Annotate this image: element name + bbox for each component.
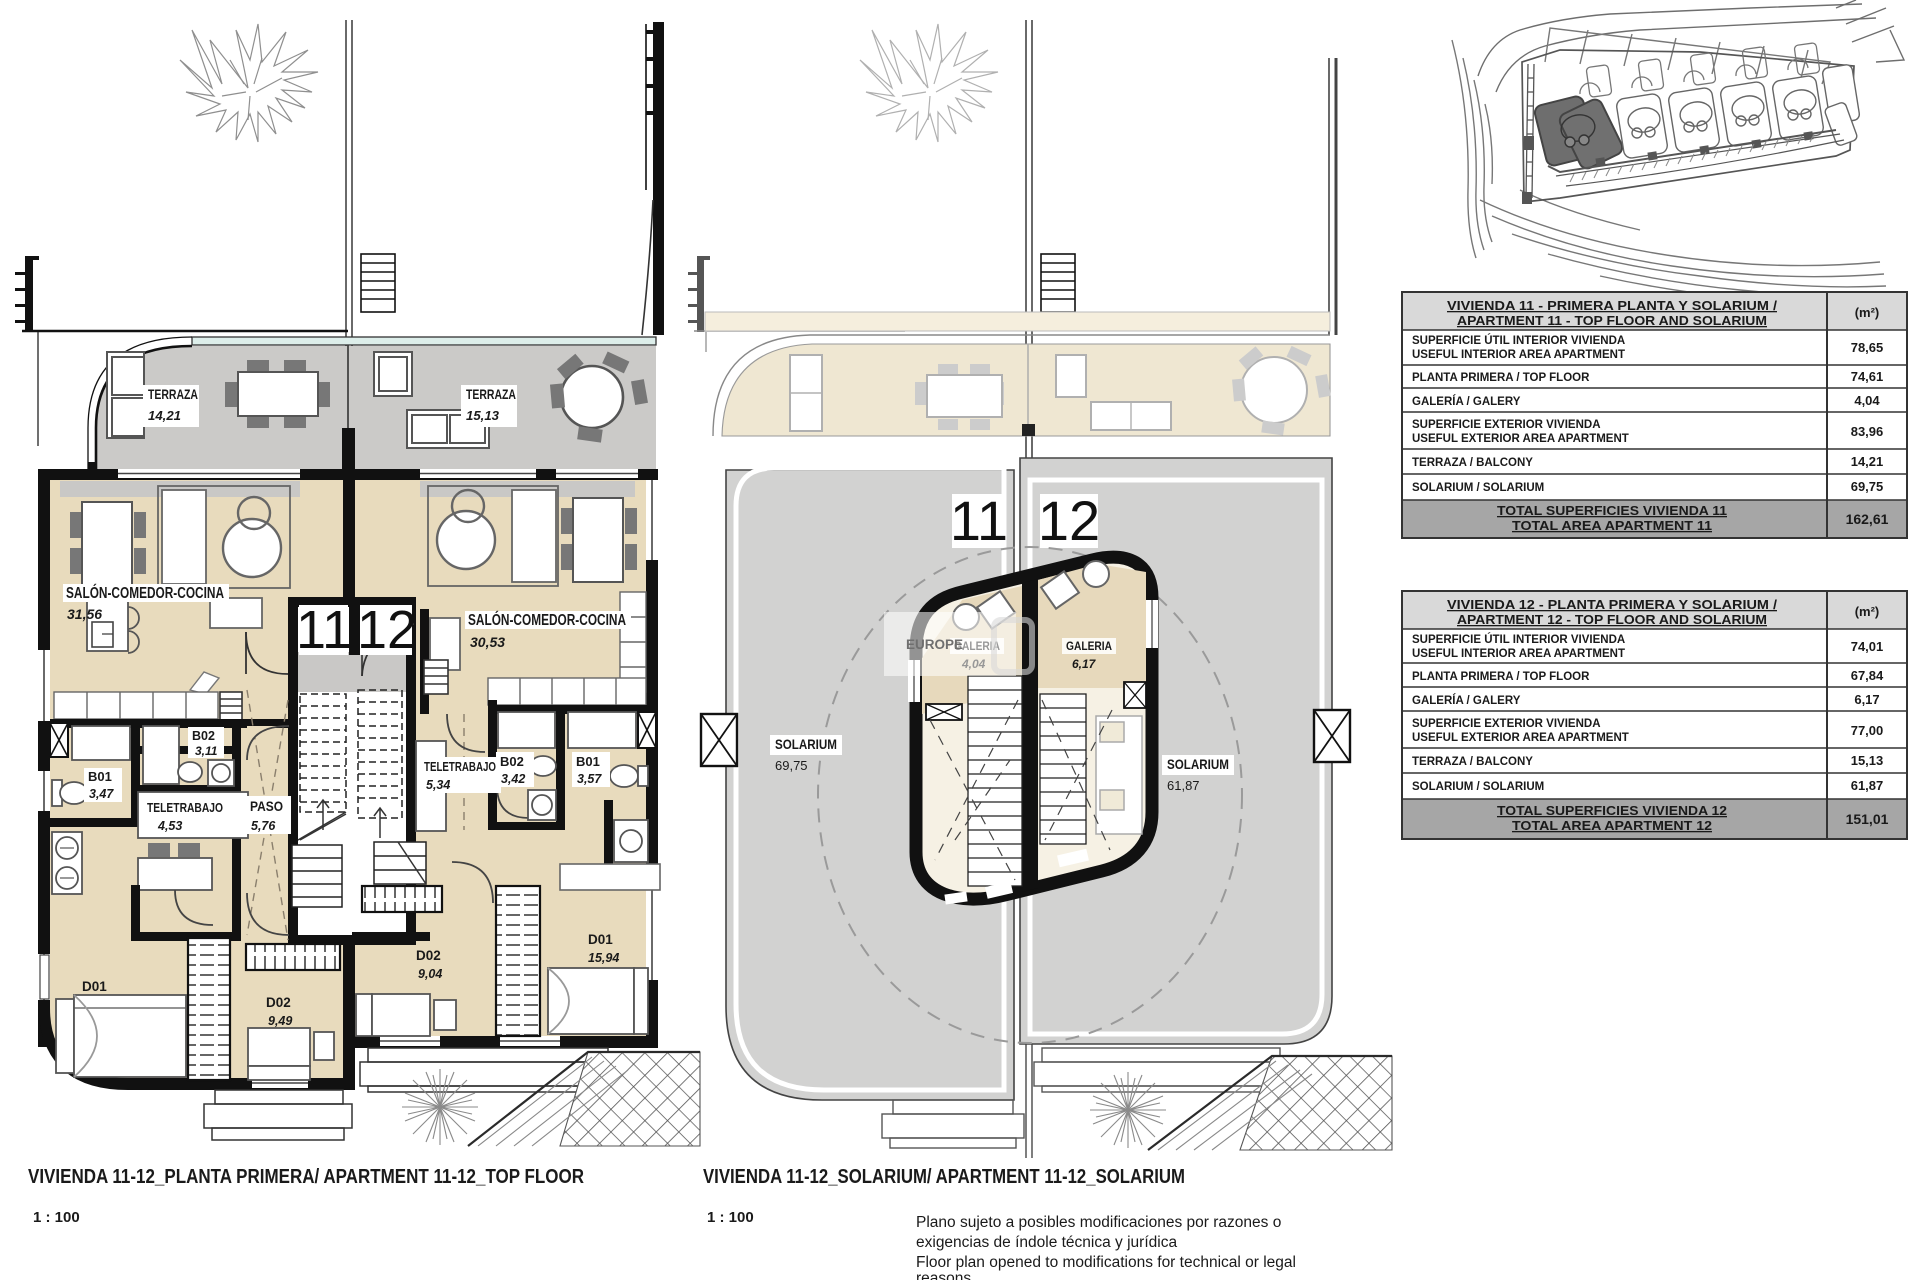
- svg-text:GALERIA: GALERIA: [1066, 639, 1112, 653]
- svg-text:TERRAZA / BALCONY: TERRAZA / BALCONY: [1412, 756, 1533, 768]
- svg-text:11: 11: [296, 600, 352, 660]
- svg-text:D02: D02: [416, 948, 441, 963]
- svg-text:5,76: 5,76: [251, 819, 276, 833]
- svg-text:GALERÍA / GALERY: GALERÍA / GALERY: [1412, 694, 1521, 707]
- svg-text:1 : 100: 1 : 100: [33, 1209, 80, 1226]
- svg-text:14,21: 14,21: [148, 408, 181, 423]
- svg-text:TOTAL AREA APARTMENT 11: TOTAL AREA APARTMENT 11: [1512, 518, 1712, 533]
- svg-text:USEFUL INTERIOR AREA APARTMENT: USEFUL INTERIOR AREA APARTMENT: [1412, 648, 1625, 660]
- svg-text:6,17: 6,17: [1072, 657, 1097, 671]
- svg-text:TOTAL SUPERFICIES VIVIENDA 12: TOTAL SUPERFICIES VIVIENDA 12: [1497, 803, 1727, 818]
- svg-text:162,61: 162,61: [1846, 511, 1889, 527]
- svg-text:15,94: 15,94: [588, 951, 619, 965]
- svg-text:69,75: 69,75: [775, 758, 808, 773]
- svg-text:1 : 100: 1 : 100: [707, 1209, 754, 1226]
- svg-text:TELETRABAJO: TELETRABAJO: [147, 800, 223, 815]
- svg-text:TERRAZA: TERRAZA: [148, 386, 198, 402]
- svg-text:15,13: 15,13: [466, 408, 500, 423]
- svg-text:TOTAL SUPERFICIES VIVIENDA 11: TOTAL SUPERFICIES VIVIENDA 11: [1497, 503, 1727, 518]
- svg-text:TERRAZA / BALCONY: TERRAZA / BALCONY: [1412, 457, 1533, 469]
- svg-text:5,34: 5,34: [426, 778, 450, 792]
- svg-text:74,01: 74,01: [1851, 639, 1884, 654]
- svg-text:VIVIENDA 11-12_PLANTA PRIMERA/: VIVIENDA 11-12_PLANTA PRIMERA/ APARTMENT…: [28, 1166, 584, 1188]
- svg-text:VIVIENDA 12 - PLANTA PRIMERA Y: VIVIENDA 12 - PLANTA PRIMERA Y SOLARIUM …: [1447, 597, 1777, 612]
- svg-text:SOLARIUM: SOLARIUM: [775, 736, 837, 752]
- svg-text:(m²): (m²): [1855, 305, 1880, 320]
- svg-text:B02: B02: [500, 754, 524, 769]
- svg-text:78,65: 78,65: [1851, 340, 1884, 355]
- svg-text:USEFUL EXTERIOR AREA APARTMENT: USEFUL EXTERIOR AREA APARTMENT: [1412, 732, 1629, 744]
- svg-text:USEFUL INTERIOR AREA APARTMENT: USEFUL INTERIOR AREA APARTMENT: [1412, 349, 1625, 361]
- svg-text:EUROPE: EUROPE: [906, 637, 963, 652]
- svg-text:SUPERFICIE ÚTIL INTERIOR VIVIE: SUPERFICIE ÚTIL INTERIOR VIVIENDA: [1412, 633, 1625, 646]
- svg-text:67,84: 67,84: [1851, 668, 1884, 683]
- svg-text:151,01: 151,01: [1846, 811, 1889, 827]
- svg-text:30,53: 30,53: [470, 634, 505, 650]
- svg-text:83,96: 83,96: [1851, 424, 1884, 439]
- svg-text:USEFUL EXTERIOR AREA APARTMENT: USEFUL EXTERIOR AREA APARTMENT: [1412, 433, 1629, 445]
- svg-text:Floor plan opened to modificat: Floor plan opened to modifications for t…: [916, 1254, 1296, 1271]
- svg-text:15,13: 15,13: [1851, 753, 1884, 768]
- svg-text:reasons: reasons: [916, 1270, 971, 1280]
- svg-text:Plano sujeto a posibles modifi: Plano sujeto a posibles modificaciones p…: [916, 1214, 1281, 1231]
- svg-text:11: 11: [950, 489, 1008, 552]
- svg-text:12: 12: [1038, 489, 1100, 552]
- svg-text:SUPERFICIE EXTERIOR VIVIENDA: SUPERFICIE EXTERIOR VIVIENDA: [1412, 419, 1601, 431]
- svg-text:PLANTA PRIMERA / TOP FLOOR: PLANTA PRIMERA / TOP FLOOR: [1412, 671, 1590, 683]
- svg-text:B01: B01: [576, 754, 600, 769]
- svg-text:9,04: 9,04: [418, 967, 442, 981]
- svg-text:31,56: 31,56: [67, 606, 102, 622]
- svg-text:4,04: 4,04: [1854, 393, 1880, 408]
- svg-text:GALERÍA / GALERY: GALERÍA / GALERY: [1412, 395, 1521, 408]
- svg-text:SOLARIUM / SOLARIUM: SOLARIUM / SOLARIUM: [1412, 482, 1544, 494]
- svg-text:VIVIENDA 11-12_SOLARIUM/ APART: VIVIENDA 11-12_SOLARIUM/ APARTMENT 11-12…: [703, 1166, 1185, 1188]
- svg-text:TOTAL AREA APARTMENT 12: TOTAL AREA APARTMENT 12: [1512, 818, 1712, 833]
- svg-text:exigencias de índole técnica y: exigencias de índole técnica y jurídica: [916, 1234, 1177, 1251]
- svg-text:69,75: 69,75: [1851, 479, 1884, 494]
- svg-text:SOLARIUM: SOLARIUM: [1167, 756, 1229, 772]
- svg-text:77,00: 77,00: [1851, 723, 1884, 738]
- svg-text:SALÓN-COMEDOR-COCINA: SALÓN-COMEDOR-COCINA: [66, 584, 224, 602]
- svg-text:3,57: 3,57: [577, 772, 602, 786]
- svg-text:D01: D01: [588, 932, 613, 947]
- svg-text:SOLARIUM / SOLARIUM: SOLARIUM / SOLARIUM: [1412, 781, 1544, 793]
- svg-text:TELETRABAJO: TELETRABAJO: [424, 759, 496, 774]
- svg-text:SALÓN-COMEDOR-COCINA: SALÓN-COMEDOR-COCINA: [468, 611, 626, 629]
- svg-text:TERRAZA: TERRAZA: [466, 386, 516, 402]
- svg-text:61,87: 61,87: [1851, 778, 1884, 793]
- svg-text:74,61: 74,61: [1851, 369, 1884, 384]
- svg-text:B01: B01: [88, 769, 112, 784]
- svg-text:3,11: 3,11: [195, 744, 218, 758]
- svg-text:B02: B02: [192, 729, 215, 743]
- svg-text:9,49: 9,49: [268, 1014, 292, 1028]
- svg-text:61,87: 61,87: [1167, 778, 1200, 793]
- svg-text:SUPERFICIE ÚTIL INTERIOR VIVIE: SUPERFICIE ÚTIL INTERIOR VIVIENDA: [1412, 334, 1625, 347]
- svg-text:D01: D01: [82, 979, 107, 994]
- svg-text:APARTMENT 11 - TOP FLOOR AND S: APARTMENT 11 - TOP FLOOR AND SOLARIUM: [1457, 313, 1767, 328]
- svg-text:PLANTA PRIMERA / TOP FLOOR: PLANTA PRIMERA / TOP FLOOR: [1412, 372, 1590, 384]
- svg-text:6,17: 6,17: [1854, 692, 1879, 707]
- svg-text:(m²): (m²): [1855, 604, 1880, 619]
- svg-text:D02: D02: [266, 995, 291, 1010]
- svg-text:PASO: PASO: [250, 799, 283, 814]
- svg-text:4,53: 4,53: [157, 819, 182, 833]
- svg-text:APARTMENT 12 - TOP FLOOR AND S: APARTMENT 12 - TOP FLOOR AND SOLARIUM: [1457, 612, 1767, 627]
- svg-text:SUPERFICIE EXTERIOR VIVIENDA: SUPERFICIE EXTERIOR VIVIENDA: [1412, 718, 1601, 730]
- svg-text:3,42: 3,42: [501, 772, 525, 786]
- svg-text:VIVIENDA 11 - PRIMERA PLANTA Y: VIVIENDA 11 - PRIMERA PLANTA Y SOLARIUM …: [1447, 298, 1777, 313]
- svg-text:12: 12: [357, 600, 417, 660]
- svg-text:14,21: 14,21: [1851, 454, 1884, 469]
- svg-text:3,47: 3,47: [89, 787, 114, 801]
